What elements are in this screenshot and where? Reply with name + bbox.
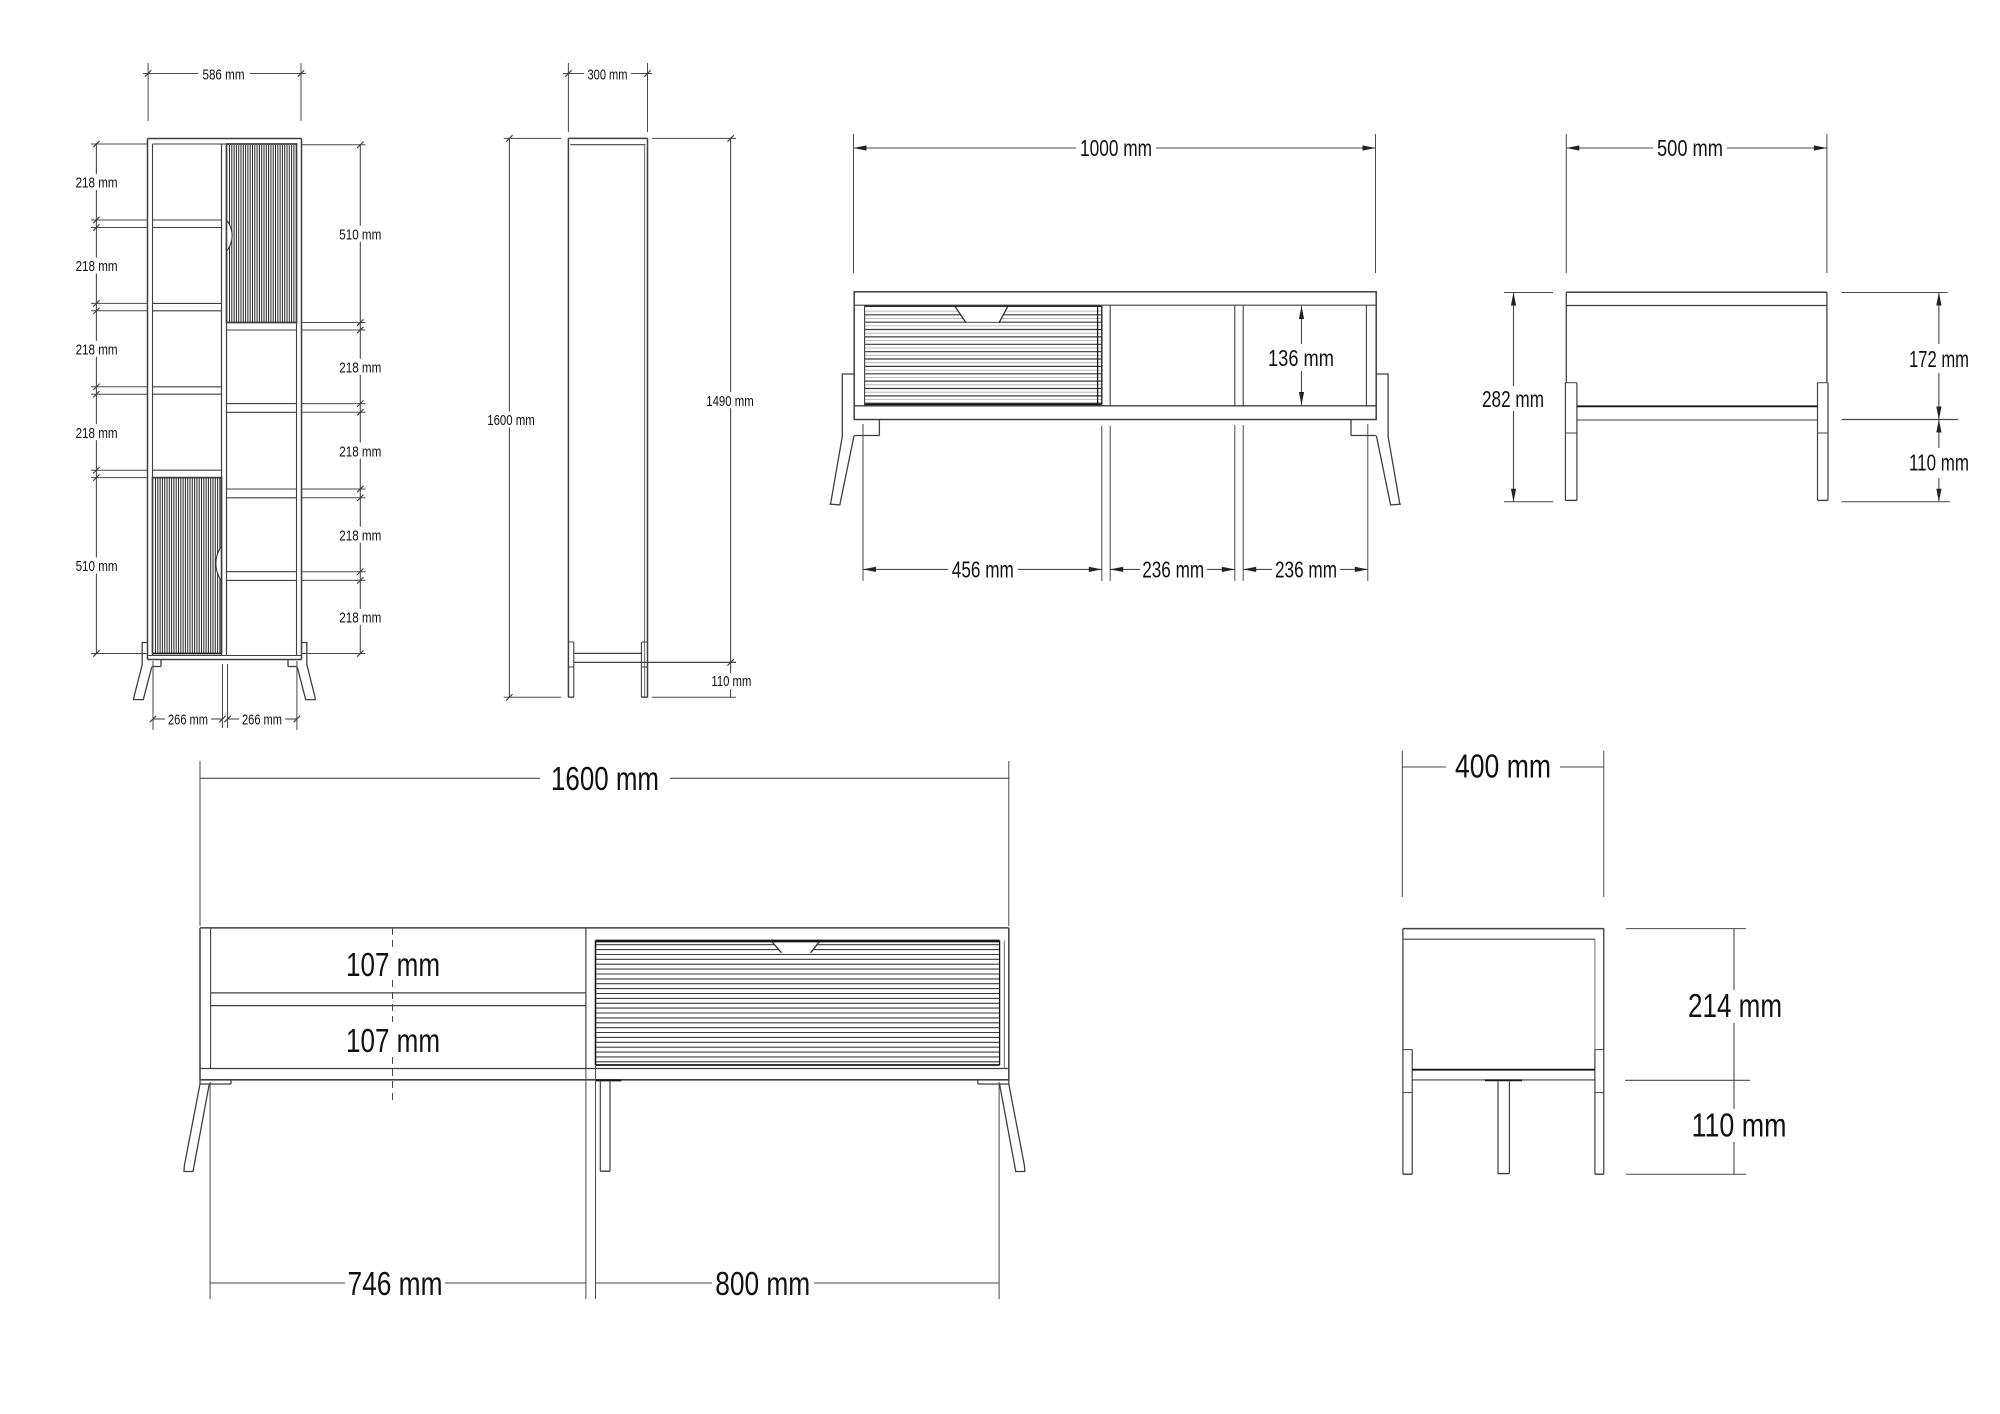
svg-text:746 mm: 746 mm [348,1265,443,1302]
svg-text:266 mm: 266 mm [242,712,282,729]
svg-text:500 mm: 500 mm [1657,135,1723,161]
svg-text:586 mm: 586 mm [203,66,245,83]
svg-text:1000 mm: 1000 mm [1080,135,1152,161]
svg-text:1490 mm: 1490 mm [706,393,754,410]
svg-text:218 mm: 218 mm [76,342,118,359]
svg-text:110 mm: 110 mm [711,673,751,690]
svg-text:456 mm: 456 mm [952,557,1014,583]
svg-text:282 mm: 282 mm [1482,386,1544,412]
svg-text:400 mm: 400 mm [1455,748,1551,785]
svg-text:510 mm: 510 mm [339,226,381,243]
svg-text:218 mm: 218 mm [339,527,381,544]
svg-text:300 mm: 300 mm [588,66,628,83]
svg-text:218 mm: 218 mm [76,425,118,442]
svg-text:236 mm: 236 mm [1275,557,1337,583]
svg-text:236 mm: 236 mm [1142,557,1204,583]
svg-text:510 mm: 510 mm [76,558,118,575]
svg-text:218 mm: 218 mm [76,175,118,192]
svg-text:800 mm: 800 mm [715,1265,810,1302]
svg-text:172 mm: 172 mm [1909,346,1969,372]
svg-text:218 mm: 218 mm [339,443,381,460]
svg-text:218 mm: 218 mm [339,360,381,377]
svg-text:1600 mm: 1600 mm [487,412,535,429]
svg-text:218 mm: 218 mm [339,610,381,627]
svg-text:110 mm: 110 mm [1692,1107,1787,1144]
svg-text:110 mm: 110 mm [1909,450,1969,476]
svg-text:107 mm: 107 mm [346,946,440,983]
svg-text:107 mm: 107 mm [346,1022,440,1059]
svg-text:214 mm: 214 mm [1688,987,1782,1024]
svg-text:1600 mm: 1600 mm [551,760,659,797]
svg-text:136 mm: 136 mm [1268,345,1334,371]
svg-text:218 mm: 218 mm [76,258,118,275]
svg-text:266 mm: 266 mm [168,712,208,729]
